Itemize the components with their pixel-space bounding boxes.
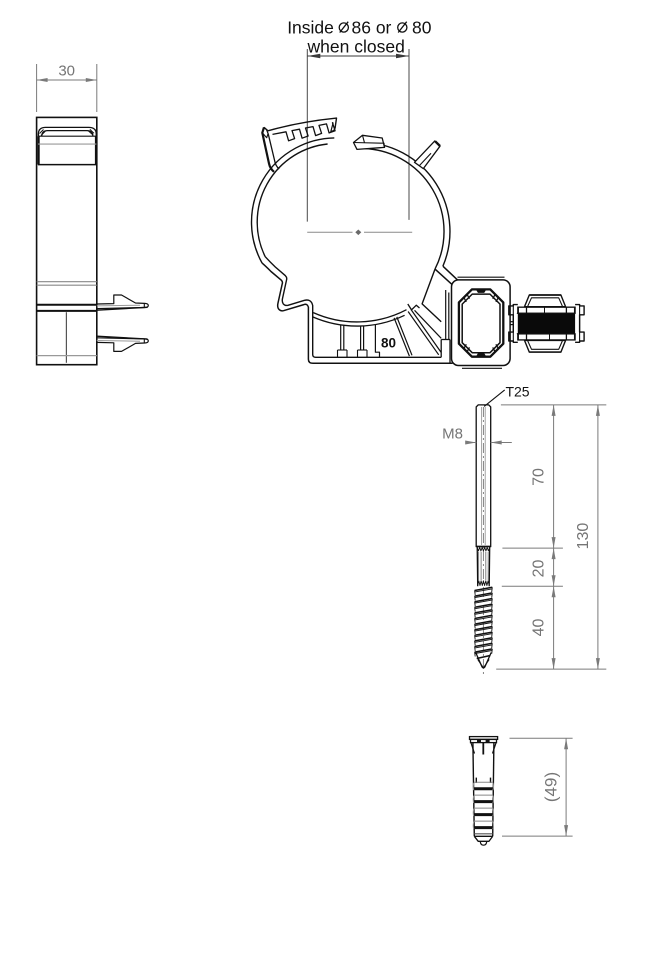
svg-text:80: 80 (412, 18, 432, 38)
svg-text:130: 130 (575, 523, 592, 550)
svg-text:Inside: Inside (287, 18, 334, 38)
svg-text:T25: T25 (505, 384, 529, 400)
svg-text:70: 70 (531, 468, 548, 486)
svg-text:M8: M8 (442, 426, 463, 443)
svg-text:80: 80 (381, 336, 396, 351)
svg-text:(49): (49) (542, 772, 561, 802)
svg-text:30: 30 (58, 63, 75, 80)
svg-text:20: 20 (531, 560, 548, 578)
svg-text:when closed: when closed (307, 37, 405, 57)
svg-text:40: 40 (531, 619, 548, 637)
svg-text:86 or: 86 or (352, 18, 392, 38)
